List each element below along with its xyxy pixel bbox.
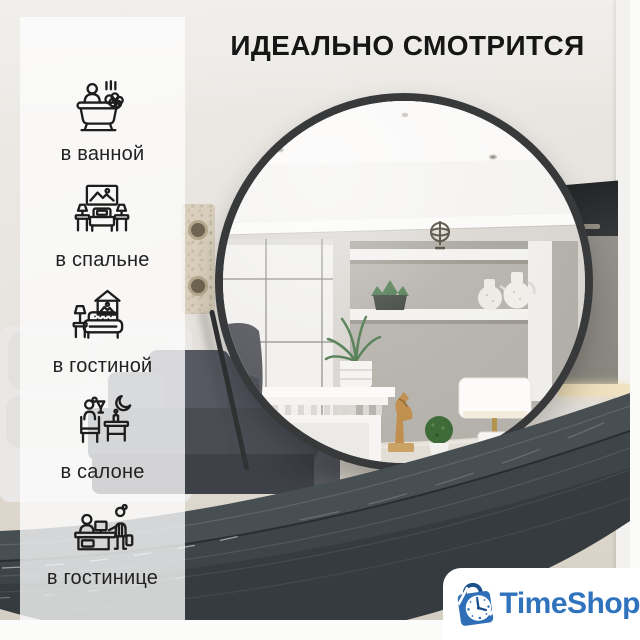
wall-trim-column [616,0,630,620]
livingroom-icon [71,287,135,351]
brand-card: TimeShop [443,568,640,640]
round-mirror [215,93,593,471]
usage-item-livingroom: в гостиной [53,287,153,379]
usage-label: в гостинице [47,567,158,590]
brand-name: TimeShop [500,587,640,621]
usage-item-bedroom: в спальне [55,181,149,273]
mirror-reflection [223,101,585,463]
led-light-strip [558,384,630,396]
usage-label: в салоне [60,461,144,484]
product-card: в ванной в спальне [0,0,640,640]
usage-item-bathroom: в ванной [61,75,145,167]
decor-medallion [188,276,208,296]
bathtub-icon [70,75,134,139]
usage-item-salon: в салоне [60,393,144,485]
usage-label: в ванной [61,143,145,166]
usage-item-hotel: в гостинице [47,499,158,591]
usage-list: в ванной в спальне [20,17,185,621]
usage-label: в спальне [55,249,149,272]
shopping-bag-clock-icon [455,577,496,631]
headline: ИДЕАЛЬНО СМОТРИТСЯ [185,30,630,62]
bedroom-icon [70,181,134,245]
wall-decor-sconce [181,204,215,314]
usage-label: в гостиной [53,355,153,378]
salon-icon [71,393,135,457]
decor-medallion [188,220,208,240]
hotel-reception-icon [70,499,134,563]
